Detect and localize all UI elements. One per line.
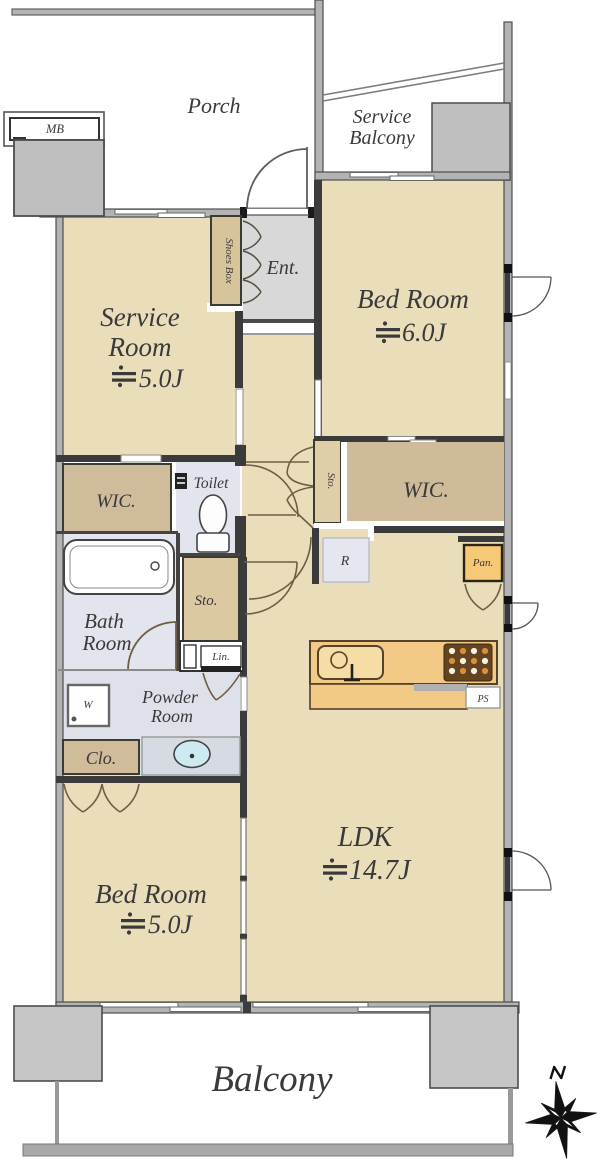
svg-text:Balcony: Balcony [211, 1059, 333, 1100]
svg-text:Service: Service [100, 302, 179, 332]
svg-text:Balcony: Balcony [349, 127, 415, 149]
svg-text:W: W [83, 699, 93, 711]
svg-text:Toilet: Toilet [194, 475, 229, 492]
svg-text:Pan.: Pan. [472, 557, 493, 569]
svg-text:Powder: Powder [141, 687, 199, 707]
svg-text:Sto.: Sto. [325, 473, 337, 490]
svg-text:WIC.: WIC. [96, 491, 136, 512]
svg-text:MB: MB [45, 122, 64, 136]
svg-text:5.0J: 5.0J [148, 910, 194, 939]
svg-text:Bath: Bath [84, 609, 124, 633]
svg-text:Room: Room [108, 332, 172, 362]
svg-text:Bed Room: Bed Room [357, 284, 469, 314]
svg-text:LDK: LDK [337, 822, 394, 853]
svg-text:Sto.: Sto. [195, 593, 218, 609]
svg-text:5.0J: 5.0J [139, 364, 185, 393]
svg-text:Lin.: Lin. [211, 651, 229, 663]
svg-text:Room: Room [150, 706, 193, 726]
svg-text:Room: Room [82, 631, 132, 655]
svg-text:Ent.: Ent. [266, 257, 300, 279]
svg-text:6.0J: 6.0J [402, 318, 448, 347]
svg-text:14.7J: 14.7J [349, 855, 412, 886]
svg-text:Porch: Porch [187, 93, 241, 118]
svg-text:Service: Service [353, 106, 412, 128]
svg-text:Clo.: Clo. [86, 748, 117, 768]
svg-text:Bed Room: Bed Room [95, 879, 207, 909]
svg-text:WIC.: WIC. [403, 477, 449, 502]
svg-text:R: R [340, 554, 350, 569]
svg-text:PS: PS [476, 694, 488, 705]
svg-text:Shoes Box: Shoes Box [223, 238, 235, 284]
